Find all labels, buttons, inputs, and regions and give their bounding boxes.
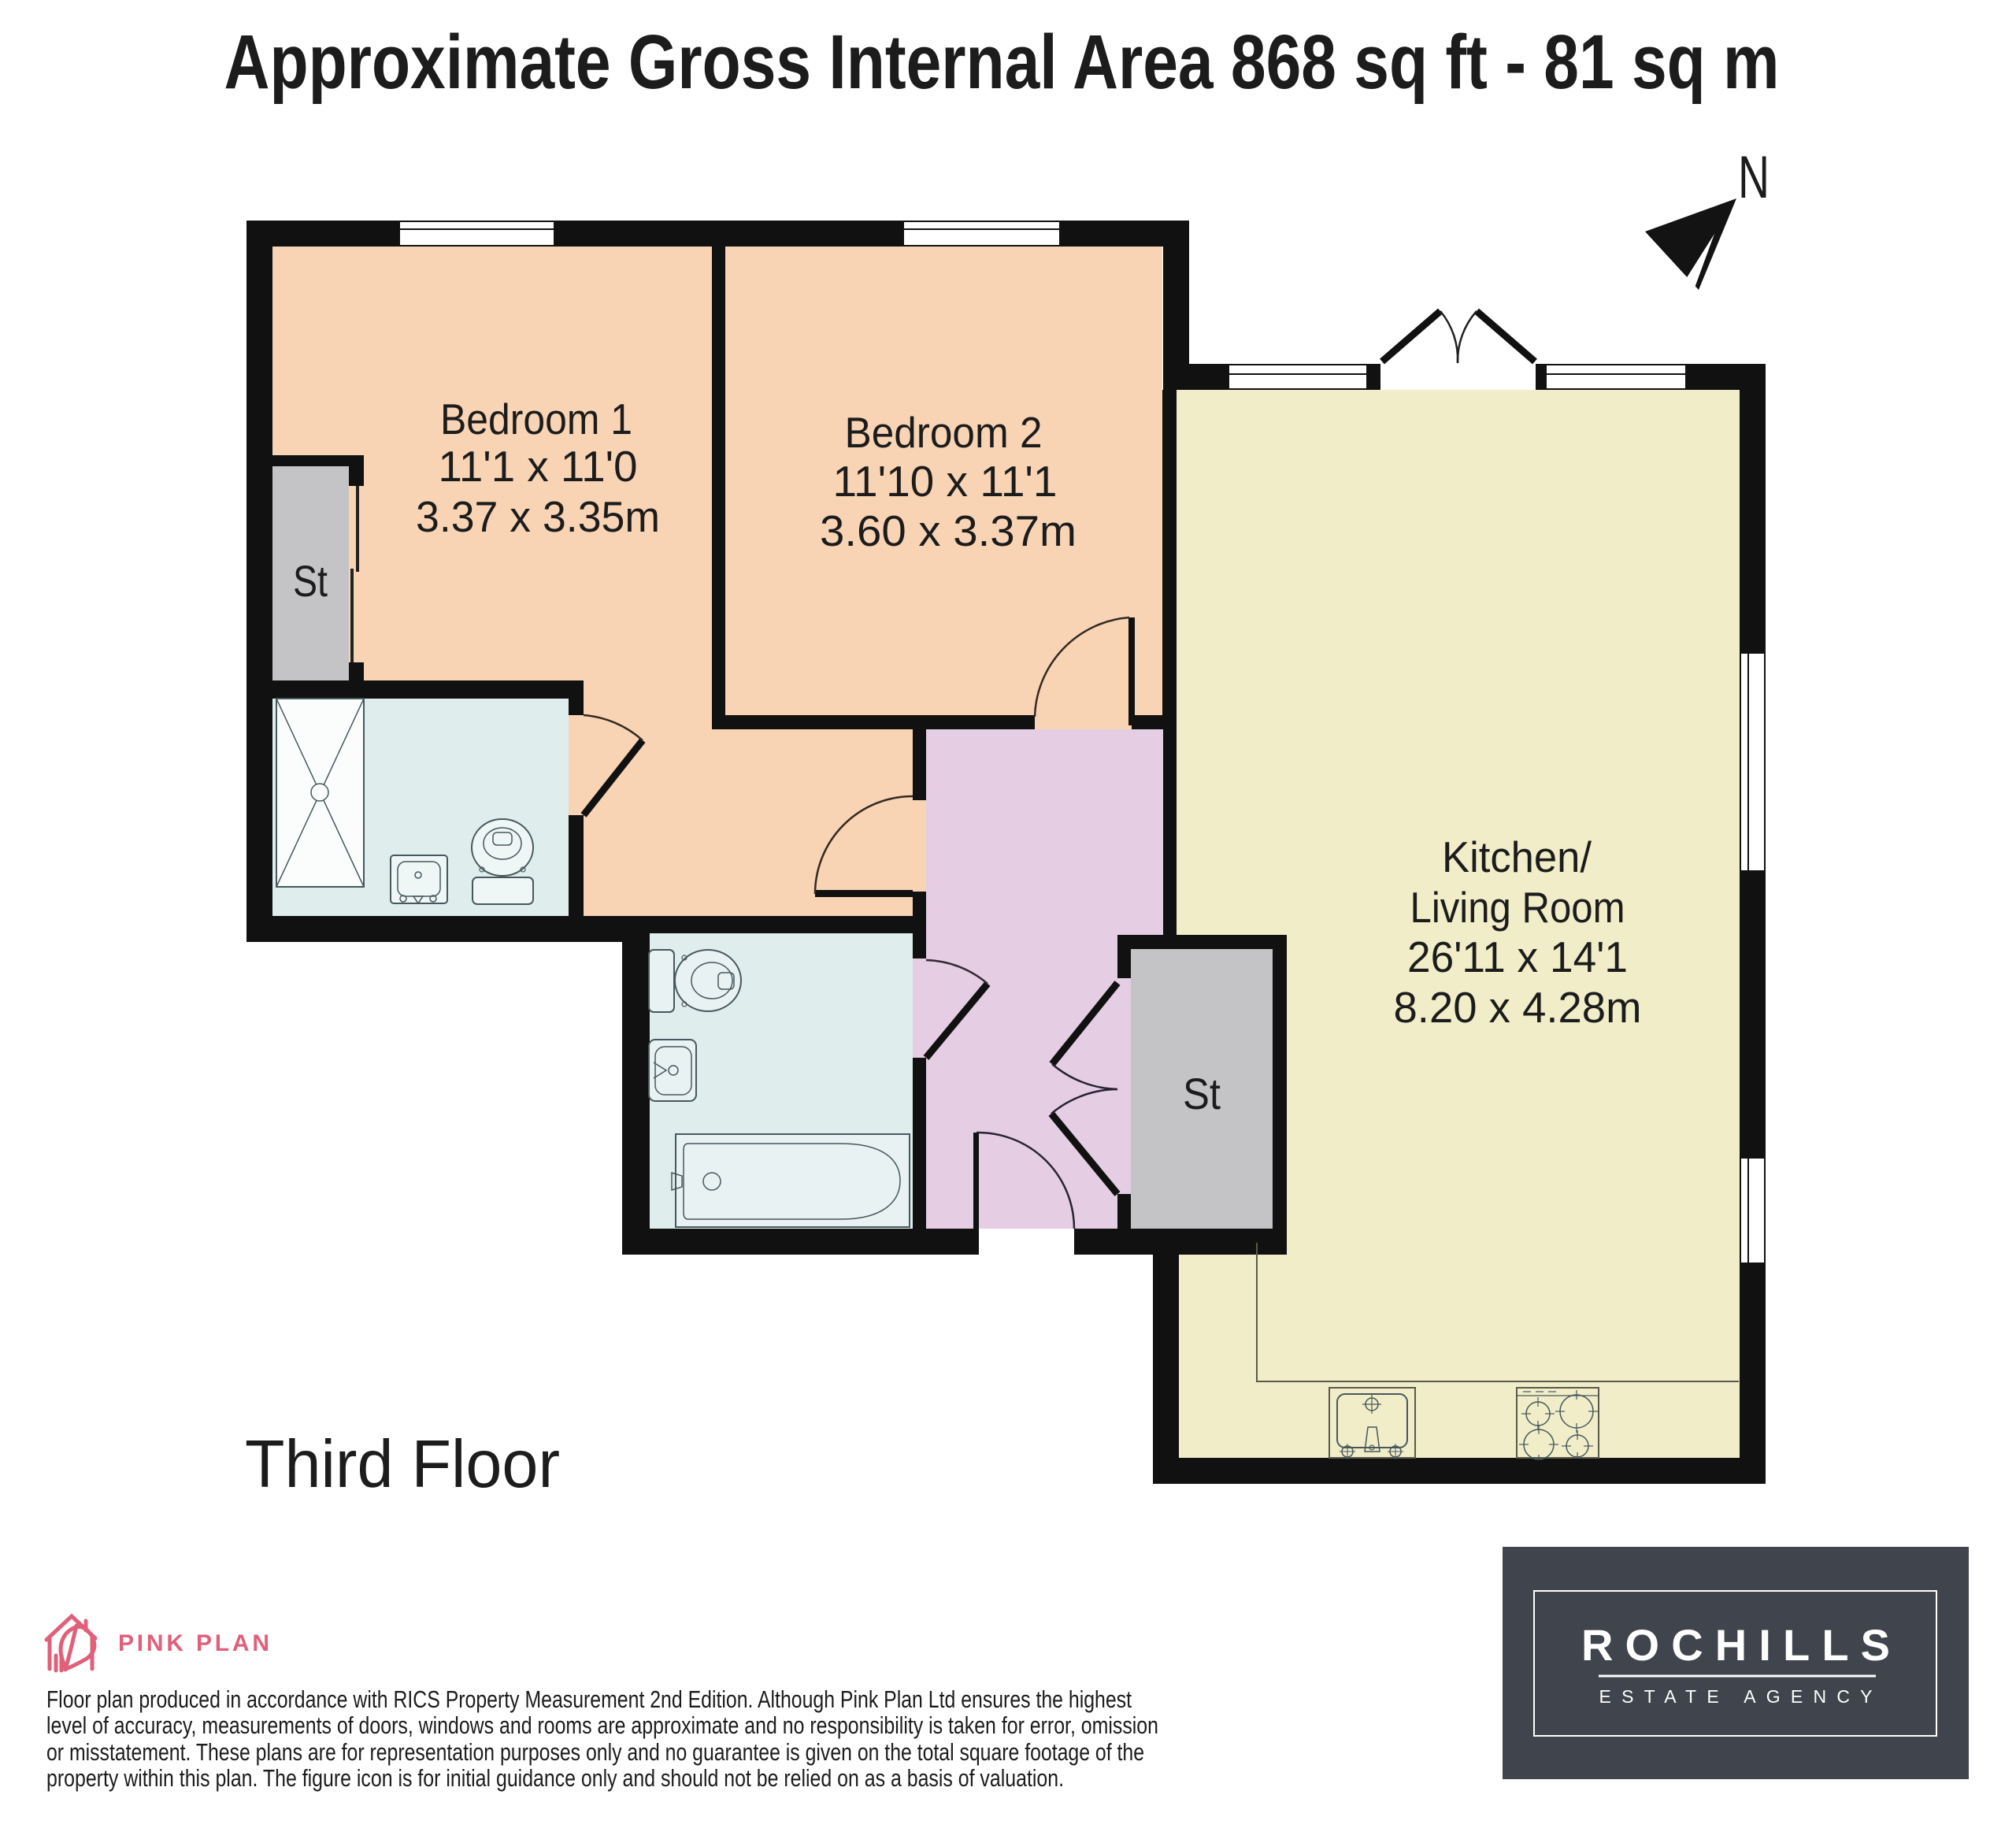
svg-text:Approximate Gross Internal Are: Approximate Gross Internal Area 868 sq f… <box>224 19 1780 105</box>
svg-text:Kitchen/: Kitchen/ <box>1442 832 1592 881</box>
svg-text:ROCHILLS: ROCHILLS <box>1581 1620 1890 1670</box>
svg-text:St: St <box>1183 1069 1221 1118</box>
svg-text:3.37 x 3.35m: 3.37 x 3.35m <box>416 492 660 541</box>
svg-text:8.20 x 4.28m: 8.20 x 4.28m <box>1394 983 1642 1032</box>
svg-text:Floor plan produced in accorda: Floor plan produced in accordance with R… <box>46 1685 1132 1713</box>
svg-text:11'1 x 11'0: 11'1 x 11'0 <box>439 442 638 491</box>
svg-text:26'11 x 14'1: 26'11 x 14'1 <box>1407 933 1628 981</box>
svg-text:3.60 x 3.37m: 3.60 x 3.37m <box>820 506 1077 555</box>
svg-text:property within this plan. The: property within this plan. The figure ic… <box>46 1764 1064 1792</box>
svg-text:11'10 x 11'1: 11'10 x 11'1 <box>833 457 1058 506</box>
svg-text:Bedroom 1: Bedroom 1 <box>440 395 632 443</box>
svg-text:St: St <box>293 556 328 606</box>
svg-text:Bedroom 2: Bedroom 2 <box>845 408 1043 457</box>
svg-text:N: N <box>1738 144 1770 211</box>
svg-text:Third Floor: Third Floor <box>245 1427 560 1502</box>
svg-text:Living Room: Living Room <box>1410 883 1625 932</box>
svg-text:or misstatement. These plans a: or misstatement. These plans are for rep… <box>46 1738 1144 1766</box>
svg-text:level of accuracy, measurement: level of accuracy, measurements of doors… <box>46 1711 1158 1739</box>
